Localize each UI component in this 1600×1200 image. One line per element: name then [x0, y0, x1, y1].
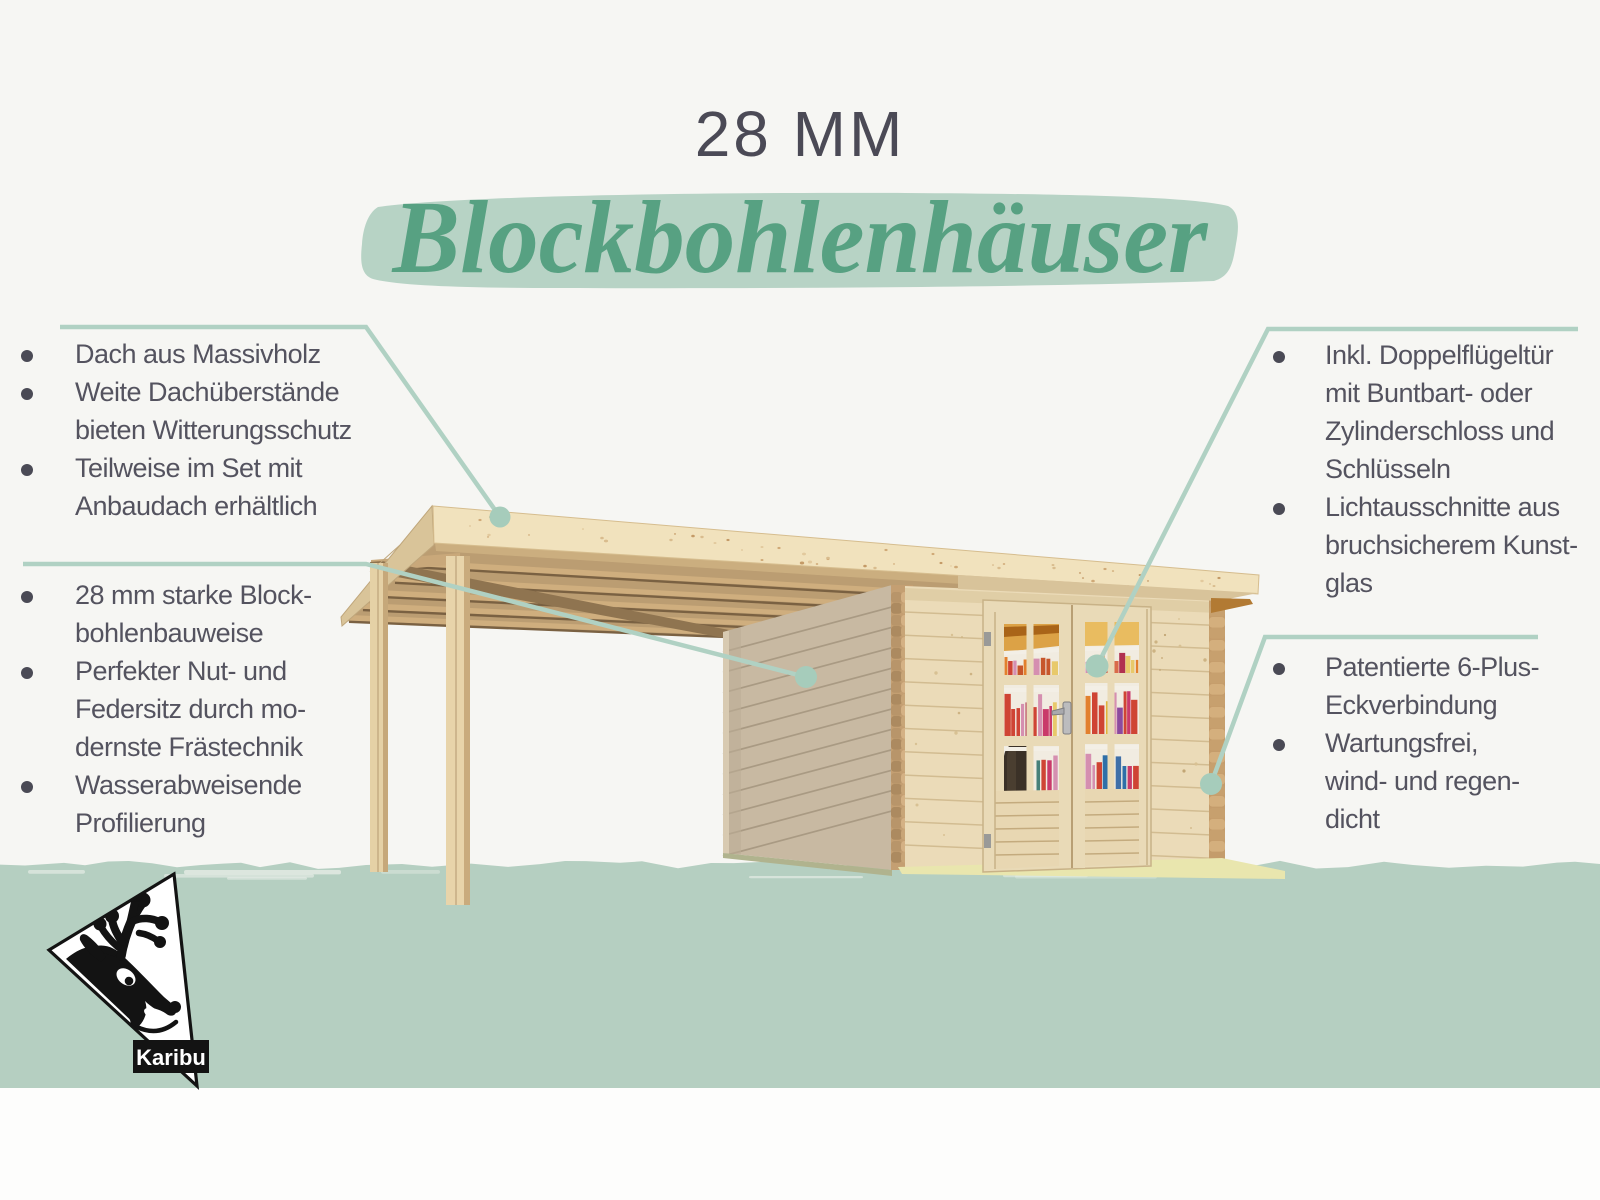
svg-text:Karibu: Karibu	[136, 1045, 206, 1070]
svg-text:Blockbohlenhäuser: Blockbohlenhäuser	[392, 180, 1209, 295]
